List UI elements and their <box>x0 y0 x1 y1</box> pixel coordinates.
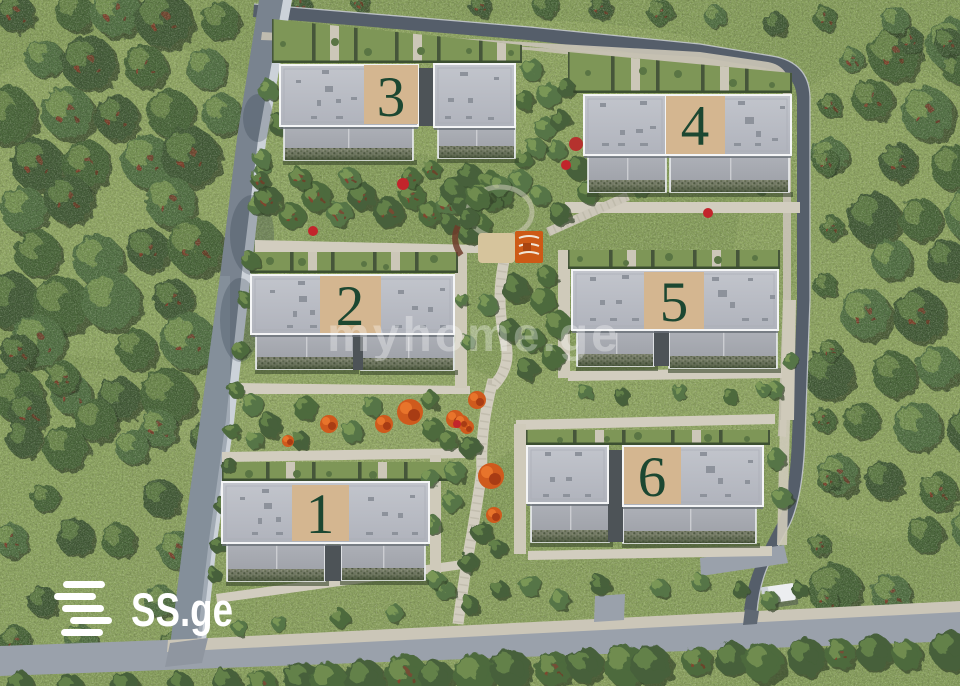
svg-text:4: 4 <box>681 95 710 158</box>
svg-text:myhome.ge: myhome.ge <box>327 309 621 362</box>
svg-text:3: 3 <box>377 66 406 129</box>
svg-text:5: 5 <box>660 271 689 334</box>
svg-text:SS.ge: SS.ge <box>131 583 233 636</box>
svg-text:1: 1 <box>306 483 335 546</box>
svg-text:6: 6 <box>638 446 667 509</box>
